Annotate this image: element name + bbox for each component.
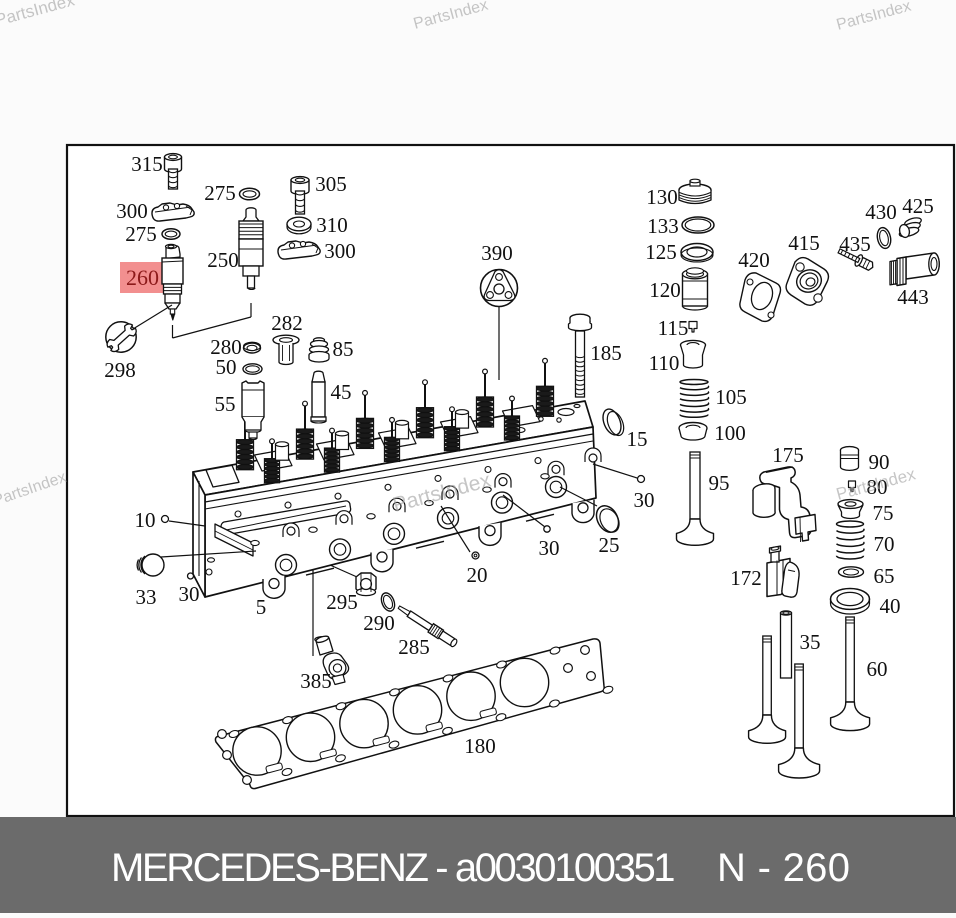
svg-text:315: 315 — [131, 152, 163, 176]
svg-text:30: 30 — [179, 582, 200, 606]
svg-text:430: 430 — [865, 200, 897, 224]
svg-text:45: 45 — [331, 380, 352, 404]
svg-text:282: 282 — [271, 311, 303, 335]
svg-text:385: 385 — [300, 669, 332, 693]
svg-text:5: 5 — [256, 595, 267, 619]
svg-text:300: 300 — [116, 199, 148, 223]
svg-text:175: 175 — [772, 443, 804, 467]
svg-text:130: 130 — [646, 185, 678, 209]
svg-text:55: 55 — [215, 392, 236, 416]
svg-text:75: 75 — [873, 501, 894, 525]
svg-text:110: 110 — [649, 351, 680, 375]
svg-text:120: 120 — [649, 278, 681, 302]
svg-text:172: 172 — [730, 566, 762, 590]
svg-text:305: 305 — [315, 172, 347, 196]
svg-text:185: 185 — [590, 341, 622, 365]
svg-text:250: 250 — [207, 248, 239, 272]
svg-text:30: 30 — [634, 488, 655, 512]
svg-text:390: 390 — [481, 241, 513, 265]
svg-text:95: 95 — [709, 471, 730, 495]
svg-text:70: 70 — [874, 532, 895, 556]
svg-text:90: 90 — [869, 450, 890, 474]
svg-text:85: 85 — [333, 337, 354, 361]
svg-text:310: 310 — [316, 213, 348, 237]
svg-text:30: 30 — [539, 536, 560, 560]
svg-text:133: 133 — [647, 214, 679, 238]
svg-text:65: 65 — [874, 564, 895, 588]
svg-text:425: 425 — [902, 194, 934, 218]
svg-text:275: 275 — [204, 181, 236, 205]
svg-text:100: 100 — [714, 421, 746, 445]
svg-text:115: 115 — [658, 316, 689, 340]
svg-text:33: 33 — [136, 585, 157, 609]
svg-text:420: 420 — [738, 248, 770, 272]
svg-text:105: 105 — [715, 385, 747, 409]
svg-text:60: 60 — [867, 657, 888, 681]
svg-text:35: 35 — [800, 630, 821, 654]
svg-text:300: 300 — [324, 239, 356, 263]
svg-text:125: 125 — [645, 240, 677, 264]
svg-text:40: 40 — [880, 594, 901, 618]
svg-text:20: 20 — [467, 563, 488, 587]
svg-text:435: 435 — [839, 232, 871, 256]
svg-text:25: 25 — [599, 533, 620, 557]
svg-text:295: 295 — [326, 590, 358, 614]
svg-text:275: 275 — [125, 222, 157, 246]
svg-text:443: 443 — [897, 285, 929, 309]
svg-text:285: 285 — [398, 635, 430, 659]
svg-text:15: 15 — [627, 427, 648, 451]
svg-text:298: 298 — [104, 358, 136, 382]
svg-text:50: 50 — [216, 355, 237, 379]
svg-text:180: 180 — [464, 734, 496, 758]
svg-text:290: 290 — [363, 611, 395, 635]
svg-text:260: 260 — [126, 265, 159, 290]
svg-text:10: 10 — [135, 508, 156, 532]
svg-text:415: 415 — [788, 231, 820, 255]
